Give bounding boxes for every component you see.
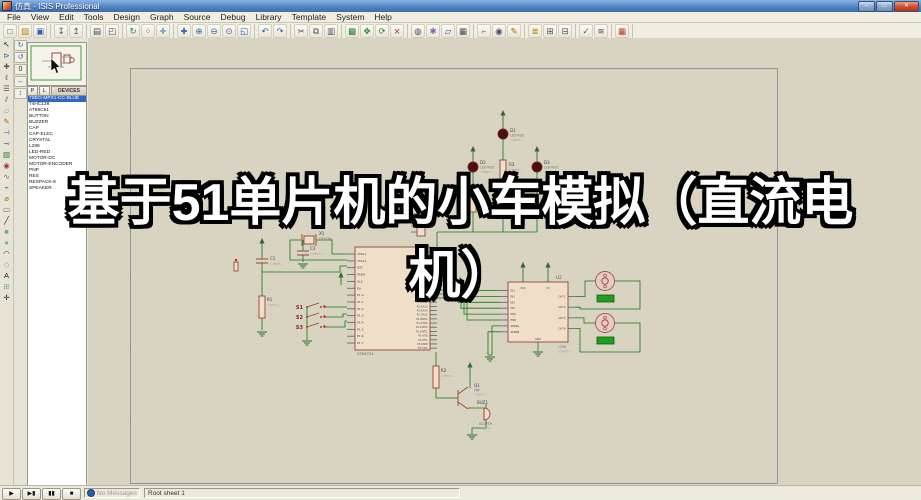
pin-label: P0.1/AD1 bbox=[416, 255, 428, 258]
block-delete-icon[interactable]: ⨯ bbox=[390, 24, 404, 38]
svg-text:<TEXT>: <TEXT> bbox=[310, 252, 323, 256]
box-2d-icon[interactable]: ■ bbox=[1, 226, 13, 237]
svg-text:<TEXT>: <TEXT> bbox=[510, 138, 523, 142]
toggle-grid-icon[interactable]: ⁘ bbox=[141, 24, 155, 38]
motor-1[interactable] bbox=[596, 272, 615, 303]
wire-label-icon[interactable]: ℓ bbox=[1, 72, 13, 83]
line-2d-icon[interactable]: ╱ bbox=[1, 215, 13, 226]
pin-label: P3.4/T0 bbox=[418, 335, 428, 338]
netlist-compiler-icon[interactable]: ≋ bbox=[594, 24, 608, 38]
led-d2[interactable]: D2 LED-RED <TEXT> bbox=[468, 160, 495, 174]
pin-label: P0.3/AD3 bbox=[416, 264, 428, 267]
graph-mode-icon[interactable]: ▧ bbox=[1, 149, 13, 160]
menu-item[interactable]: Tools bbox=[79, 12, 109, 23]
orientation-toolbar: ↻↺0↔↕ bbox=[14, 40, 27, 100]
selection-mode-icon[interactable]: ↖ bbox=[1, 39, 13, 50]
transistor-q1[interactable]: Q1 PNP <TEXT> bbox=[458, 383, 487, 409]
svg-text:C3: C3 bbox=[310, 246, 316, 251]
resistor-r2[interactable]: R2 <TEXT> bbox=[433, 366, 454, 388]
pin-label: IN2 bbox=[511, 294, 516, 298]
svg-text:BUZ1: BUZ1 bbox=[477, 400, 488, 405]
search-tag-icon[interactable]: ◉ bbox=[492, 24, 506, 38]
motor-2[interactable] bbox=[596, 314, 615, 345]
button-s3[interactable]: S3 bbox=[296, 323, 326, 331]
svg-text:R1: R1 bbox=[267, 297, 273, 302]
buzzer-buz1[interactable]: BUZ1 BUZZER <TEXT> bbox=[477, 400, 493, 431]
pin-label: P2.0/A8 bbox=[418, 284, 428, 287]
buses-mode-icon[interactable]: ⫽ bbox=[1, 94, 13, 105]
stop-button[interactable]: ■ bbox=[62, 488, 81, 500]
svg-text:R2: R2 bbox=[441, 368, 447, 373]
pin-label: XTAL1 bbox=[357, 252, 366, 256]
svg-text:D2: D2 bbox=[480, 160, 486, 165]
sheet-toolbar-group: ≣⊞⊟ bbox=[525, 24, 576, 38]
rotate-ccw-icon[interactable]: ↺ bbox=[14, 52, 27, 63]
wire-toolbar-group: ⌐◉✎ bbox=[474, 24, 525, 38]
netlist-toolbar-group: ✓≋ bbox=[576, 24, 612, 38]
menu-item[interactable]: View bbox=[26, 12, 54, 23]
simulation-controls: ▶▶▮▮▮■ bbox=[2, 488, 81, 500]
pin-label: P0.6/AD6 bbox=[416, 276, 428, 279]
property-assignment-icon[interactable]: ✎ bbox=[507, 24, 521, 38]
capacitor-c1[interactable]: C1 <TEXT> bbox=[256, 256, 283, 266]
maximize-button[interactable]: □ bbox=[876, 1, 893, 12]
pin-label: P3.1/TXD bbox=[417, 322, 428, 325]
svg-text:<TEXT>: <TEXT> bbox=[544, 170, 557, 174]
menu-item[interactable]: Help bbox=[369, 12, 396, 23]
zoom-all-icon[interactable]: ⊙ bbox=[222, 24, 236, 38]
svg-text:<TEXT>: <TEXT> bbox=[267, 303, 280, 307]
voltage-probe-icon[interactable]: ⌁ bbox=[1, 182, 13, 193]
menu-item[interactable]: Template bbox=[287, 12, 332, 23]
device-toolbar-group: ◍✱▱▦ bbox=[408, 24, 474, 38]
open-design-icon[interactable]: ▨ bbox=[18, 24, 32, 38]
pause-button[interactable]: ▮▮ bbox=[42, 488, 61, 500]
marker-origin-icon[interactable]: ✛ bbox=[1, 292, 13, 303]
schematic-drawing: D1 LED-RED <TEXT> D2 LED-RED <TEXT> D3 L… bbox=[88, 38, 921, 486]
undo-icon[interactable]: ↶ bbox=[258, 24, 272, 38]
svg-text:<TEXT>: <TEXT> bbox=[270, 262, 283, 266]
pin-label: IN1 bbox=[511, 289, 516, 293]
button-s2[interactable]: S2 bbox=[296, 313, 326, 321]
false-origin-icon[interactable]: ✛ bbox=[156, 24, 170, 38]
menu-item[interactable]: Source bbox=[179, 12, 216, 23]
respack[interactable] bbox=[411, 210, 425, 236]
pin-label: SENSA bbox=[511, 324, 520, 328]
device-pins-icon[interactable]: ⊸ bbox=[1, 138, 13, 149]
svg-text:<TEXT>: <TEXT> bbox=[478, 198, 491, 202]
pin-label: OUT3 bbox=[558, 316, 566, 320]
pin-label: P0.0/AD0 bbox=[416, 251, 428, 254]
pin-label: P3.2/INT0 bbox=[416, 326, 428, 329]
pick-parts-icon[interactable]: ◍ bbox=[411, 24, 425, 38]
pin-label: P2.4/A12 bbox=[417, 301, 428, 304]
pin-label: P3.6/WR bbox=[417, 343, 427, 346]
menu-item[interactable]: Edit bbox=[54, 12, 79, 23]
symbol-2d-icon[interactable]: ⊞ bbox=[1, 281, 13, 292]
redo-icon[interactable]: ↷ bbox=[273, 24, 287, 38]
svg-text:S1: S1 bbox=[296, 305, 304, 311]
window-controls: – □ ✕ bbox=[858, 1, 921, 12]
export-section-icon[interactable]: ↥ bbox=[69, 24, 83, 38]
play-button[interactable]: ▶ bbox=[2, 488, 21, 500]
pin-label: IN4 bbox=[511, 306, 516, 310]
svg-text:S3: S3 bbox=[296, 325, 304, 331]
driver-l298[interactable]: U2 IN1IN2IN3IN4ENAENBSENSASENSB OUT1OUT2… bbox=[500, 275, 576, 354]
svg-text:R3: R3 bbox=[509, 162, 515, 167]
mode-toolbar: ↖⊳✚ℓ☰⫽▱✎⊣⊸▧◉∿⌁⌀▭╱■●◠◇A⊞✛ bbox=[0, 38, 14, 486]
svg-text:<TEXT>: <TEXT> bbox=[480, 170, 493, 174]
redraw-icon[interactable]: ↻ bbox=[126, 24, 140, 38]
electrical-rules-check-icon[interactable]: ✓ bbox=[579, 24, 593, 38]
svg-text:LED-RED: LED-RED bbox=[510, 134, 525, 138]
instant-edit-icon[interactable]: ✎ bbox=[1, 116, 13, 127]
svg-text:VS: VS bbox=[546, 286, 550, 290]
svg-text:L298: L298 bbox=[558, 345, 566, 349]
pin-label: P1.7 bbox=[357, 341, 364, 345]
print-icon[interactable]: ▤ bbox=[90, 24, 104, 38]
mark-output-area-icon[interactable]: ◰ bbox=[105, 24, 119, 38]
zoom-area-icon[interactable]: ◱ bbox=[237, 24, 251, 38]
svg-text:R4: R4 bbox=[478, 192, 484, 197]
generator-icon[interactable]: ∿ bbox=[1, 171, 13, 182]
menubar: FileViewEditToolsDesignGraphSourceDebugL… bbox=[0, 12, 921, 23]
packaging-tool-icon[interactable]: ▱ bbox=[441, 24, 455, 38]
netlist-to-ares-icon[interactable]: ▦ bbox=[615, 24, 629, 38]
svg-text:AT89C51: AT89C51 bbox=[357, 351, 375, 356]
mirror-h-icon[interactable]: ↔ bbox=[14, 76, 27, 87]
svg-text:Q1: Q1 bbox=[474, 383, 480, 388]
svg-text:<TEXT>: <TEXT> bbox=[474, 393, 487, 397]
block-rotate-icon[interactable]: ⟳ bbox=[375, 24, 389, 38]
svg-text:D1: D1 bbox=[510, 128, 516, 133]
svg-text:VCC: VCC bbox=[520, 286, 526, 290]
undo-toolbar-group: ↶↷ bbox=[255, 24, 291, 38]
pin-label: IN3 bbox=[511, 300, 516, 304]
pin-label: P3.3/INT1 bbox=[416, 330, 428, 333]
svg-text:X1: X1 bbox=[319, 231, 325, 236]
pin-label: P0.4/AD4 bbox=[416, 268, 428, 271]
pin-label: P0.7/AD7 bbox=[416, 280, 428, 283]
print-toolbar-group: ▤◰ bbox=[87, 24, 123, 38]
svg-text:LED-RED: LED-RED bbox=[480, 166, 495, 170]
junction-dot-icon[interactable]: ✚ bbox=[1, 61, 13, 72]
pin-label: OUT2 bbox=[558, 305, 566, 309]
svg-text:CRYSTAL: CRYSTAL bbox=[319, 237, 333, 241]
block-move-icon[interactable]: ✥ bbox=[360, 24, 374, 38]
menu-item[interactable]: Design bbox=[108, 12, 144, 23]
info-icon bbox=[87, 489, 95, 497]
circle-2d-icon[interactable]: ● bbox=[1, 237, 13, 248]
pin-label: P2.6/A14 bbox=[417, 310, 428, 313]
svg-text:BUZZER: BUZZER bbox=[479, 422, 493, 426]
wire-autorouter-icon[interactable]: ⌐ bbox=[477, 24, 491, 38]
capacitor-c3[interactable]: C3 <TEXT> bbox=[297, 246, 323, 256]
pin-label: P1.5 bbox=[357, 327, 364, 331]
button-s1[interactable]: S1 bbox=[296, 303, 326, 311]
mouse-cursor bbox=[50, 58, 64, 76]
window-title: 仿真 - ISIS Professional bbox=[15, 1, 99, 12]
svg-text:C1: C1 bbox=[270, 256, 276, 261]
tape-recorder-icon[interactable]: ◉ bbox=[1, 160, 13, 171]
pin-label: P2.3/A11 bbox=[417, 297, 428, 300]
new-sheet-icon[interactable]: ⊞ bbox=[543, 24, 557, 38]
svg-text:S2: S2 bbox=[296, 315, 304, 321]
close-button[interactable]: ✕ bbox=[894, 1, 919, 12]
pin-label: RST bbox=[357, 266, 363, 270]
svg-text:LED-RED: LED-RED bbox=[544, 166, 559, 170]
device-list[interactable]: 7SEG-MPX1-CC-BLUE74HC138AT89C51BUTTONBUZ… bbox=[27, 95, 87, 486]
mirror-v-icon[interactable]: ↕ bbox=[14, 88, 27, 99]
sidebar: ↖⊳✚ℓ☰⫽▱✎⊣⊸▧◉∿⌁⌀▭╱■●◠◇A⊞✛ ↻↺0↔↕ P L DEVIC… bbox=[0, 38, 89, 486]
pin-label: P1.3 bbox=[357, 314, 364, 318]
path-2d-icon[interactable]: ◇ bbox=[1, 259, 13, 270]
pin-label: P2.5/A13 bbox=[417, 305, 428, 308]
mcu-at89c51[interactable]: XTAL1XTAL2RSTPSENALEEAP1.0P1.1P1.2P1.3P1… bbox=[347, 247, 437, 356]
pin-label: P1.4 bbox=[357, 321, 364, 325]
menu-item[interactable]: Debug bbox=[216, 12, 251, 23]
menu-item[interactable]: File bbox=[2, 12, 26, 23]
zoom-out-icon[interactable]: ⊖ bbox=[207, 24, 221, 38]
pin-label: ENB bbox=[511, 318, 517, 322]
pin-label: XTAL2 bbox=[357, 259, 366, 263]
display-toolbar-group: ↻⁘✛ bbox=[123, 24, 174, 38]
cut-icon[interactable]: ✂ bbox=[294, 24, 308, 38]
pin-label: PSEN bbox=[357, 273, 365, 277]
center-at-cursor-icon[interactable]: ✚ bbox=[177, 24, 191, 38]
object-selector-header: P L DEVICES bbox=[27, 86, 87, 94]
pin-label: P2.2/A10 bbox=[417, 293, 428, 296]
pin-label: P3.7/RD bbox=[418, 347, 428, 350]
sheet-name-field: Root sheet 1 bbox=[144, 488, 460, 498]
svg-text:D3: D3 bbox=[544, 160, 550, 165]
pin-label: P3.0/RXD bbox=[416, 318, 427, 321]
section-toolbar-group: ↧↥ bbox=[51, 24, 87, 38]
svg-text:<TEXT>: <TEXT> bbox=[441, 374, 454, 378]
pin-label: P1.1 bbox=[357, 300, 364, 304]
zoom-toolbar-group: ✚⊕⊖⊙◱ bbox=[174, 24, 255, 38]
pin-label: P3.5/T1 bbox=[418, 339, 428, 342]
pin-label: OUT4 bbox=[558, 327, 566, 331]
pin-label: P2.1/A9 bbox=[418, 289, 428, 292]
arc-2d-icon[interactable]: ◠ bbox=[1, 248, 13, 259]
svg-text:GND: GND bbox=[535, 337, 541, 341]
svg-text:<TEXT>: <TEXT> bbox=[558, 350, 571, 354]
pin-label: ALE bbox=[357, 279, 363, 283]
resistor-r4[interactable]: R4 <TEXT> bbox=[470, 190, 491, 212]
design-explorer-icon[interactable]: ≣ bbox=[528, 24, 542, 38]
current-probe-icon[interactable]: ⌀ bbox=[1, 193, 13, 204]
pin-label: P0.5/AD5 bbox=[416, 272, 428, 275]
led-d3[interactable]: D3 LED-RED <TEXT> bbox=[532, 160, 559, 174]
make-device-icon[interactable]: ✱ bbox=[426, 24, 440, 38]
menu-item[interactable]: Graph bbox=[145, 12, 179, 23]
svg-text:<TEXT>: <TEXT> bbox=[509, 168, 522, 172]
svg-text:U2: U2 bbox=[556, 275, 562, 280]
ares-toolbar-group: ▦ bbox=[612, 24, 633, 38]
pin-label: SENSB bbox=[511, 330, 520, 334]
minimize-button[interactable]: – bbox=[858, 1, 875, 12]
text-2d-icon[interactable]: A bbox=[1, 270, 13, 281]
text-script-icon[interactable]: ☰ bbox=[1, 83, 13, 94]
small-component[interactable] bbox=[234, 259, 238, 271]
device-item[interactable]: SPEAKER bbox=[28, 186, 86, 192]
block-copy-icon[interactable]: ▩ bbox=[345, 24, 359, 38]
save-design-icon[interactable]: ▣ bbox=[33, 24, 47, 38]
main-toolbar: □▨▣ ↧↥ ▤◰ ↻⁘✛ ✚⊕⊖⊙◱ ↶↷ ✂⧉▥ ▩✥⟳⨯ ◍✱▱▦ ⌐◉✎… bbox=[0, 23, 921, 39]
menu-item[interactable]: System bbox=[331, 12, 369, 23]
message-field: No Messages bbox=[84, 488, 140, 498]
component-mode-icon[interactable]: ⊳ bbox=[1, 50, 13, 61]
wires bbox=[262, 123, 640, 434]
pin-label: OUT1 bbox=[558, 295, 566, 299]
remove-sheet-icon[interactable]: ⊟ bbox=[558, 24, 572, 38]
led-d1[interactable]: D1 LED-RED <TEXT> bbox=[498, 128, 525, 142]
menu-item[interactable]: Library bbox=[251, 12, 287, 23]
copy-icon[interactable]: ⧉ bbox=[309, 24, 323, 38]
terminals-icon[interactable]: ⊣ bbox=[1, 127, 13, 138]
pin-label: P2.7/A15 bbox=[417, 314, 428, 317]
instruments-icon[interactable]: ▭ bbox=[1, 204, 13, 215]
schematic-canvas[interactable]: D1 LED-RED <TEXT> D2 LED-RED <TEXT> D3 L… bbox=[88, 38, 921, 486]
rotate-cw-icon[interactable]: ↻ bbox=[14, 40, 27, 51]
rotate-angle-field[interactable]: 0 bbox=[14, 64, 27, 75]
app-icon bbox=[2, 1, 12, 11]
new-file-icon[interactable]: □ bbox=[3, 24, 17, 38]
resistor-r3[interactable]: R3 <TEXT> bbox=[500, 160, 522, 184]
paste-icon[interactable]: ▥ bbox=[324, 24, 338, 38]
zoom-in-icon[interactable]: ⊕ bbox=[192, 24, 206, 38]
status-message: No Messages bbox=[97, 490, 137, 497]
crystal-x1[interactable]: X1 CRYSTAL bbox=[302, 231, 333, 246]
step-button[interactable]: ▶▮ bbox=[22, 488, 41, 500]
file-toolbar-group: □▨▣ bbox=[0, 24, 51, 38]
isis-window: 仿真 - ISIS Professional – □ ✕ FileViewEdi… bbox=[0, 0, 921, 500]
import-section-icon[interactable]: ↧ bbox=[54, 24, 68, 38]
titlebar: 仿真 - ISIS Professional – □ ✕ bbox=[0, 0, 921, 12]
resistor-r1[interactable]: R1 <TEXT> bbox=[259, 296, 280, 318]
pin-label: P0.2/AD2 bbox=[416, 259, 428, 262]
pin-label: ENA bbox=[511, 312, 517, 316]
pin-label: P1.0 bbox=[357, 293, 364, 297]
pin-label: P1.2 bbox=[357, 307, 364, 311]
pin-label: P1.6 bbox=[357, 334, 364, 338]
svg-text:<TEXT>: <TEXT> bbox=[479, 427, 492, 431]
subcircuit-icon[interactable]: ▱ bbox=[1, 105, 13, 116]
block-toolbar-group: ▩✥⟳⨯ bbox=[342, 24, 408, 38]
clipboard-toolbar-group: ✂⧉▥ bbox=[291, 24, 342, 38]
statusbar: ▶▶▮▮▮■ No Messages Root sheet 1 bbox=[0, 485, 921, 500]
decompose-icon[interactable]: ▦ bbox=[456, 24, 470, 38]
